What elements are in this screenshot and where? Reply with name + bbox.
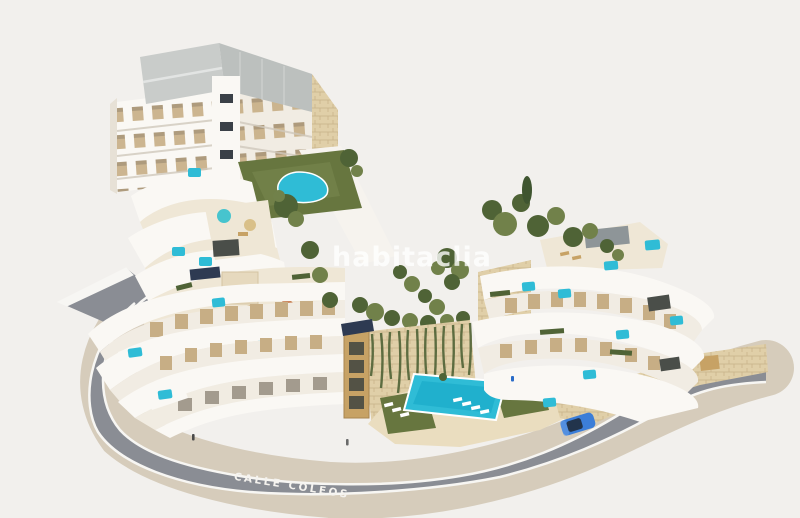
plunge-pool [522, 281, 536, 291]
pedestrian [346, 439, 349, 446]
plunge-pool [558, 288, 572, 298]
plunge-pool [604, 260, 619, 270]
property-render: CALLE COLEOS [0, 0, 800, 518]
plunge-pool [583, 369, 597, 379]
parasol [217, 209, 231, 223]
plunge-pool [670, 315, 684, 325]
plunge-pool [616, 329, 630, 339]
tower-window [220, 94, 233, 103]
tower-window [220, 150, 233, 159]
cypress-tree [522, 176, 532, 204]
lift-glass [349, 396, 364, 409]
aerial-render-scene: CALLE COLEOS [0, 0, 800, 518]
plunge-pool [212, 297, 226, 307]
lift-glass [349, 378, 364, 391]
plunge-pool [645, 239, 661, 250]
pergola [212, 239, 239, 257]
person-on-terrace [511, 376, 514, 382]
plunge-pool [188, 168, 201, 177]
lift-glass [349, 360, 364, 373]
tower-window [220, 122, 233, 131]
plunge-pool [172, 247, 185, 256]
poolside-bush [439, 373, 447, 381]
pedestrian [192, 434, 195, 441]
watermark: habitaclia [332, 242, 492, 273]
parasol [244, 219, 256, 231]
lift-glass [349, 342, 364, 355]
outdoor-table [238, 232, 248, 236]
plunge-pool [199, 257, 212, 266]
left-side-wall [110, 98, 117, 194]
plunge-pool [543, 397, 557, 407]
